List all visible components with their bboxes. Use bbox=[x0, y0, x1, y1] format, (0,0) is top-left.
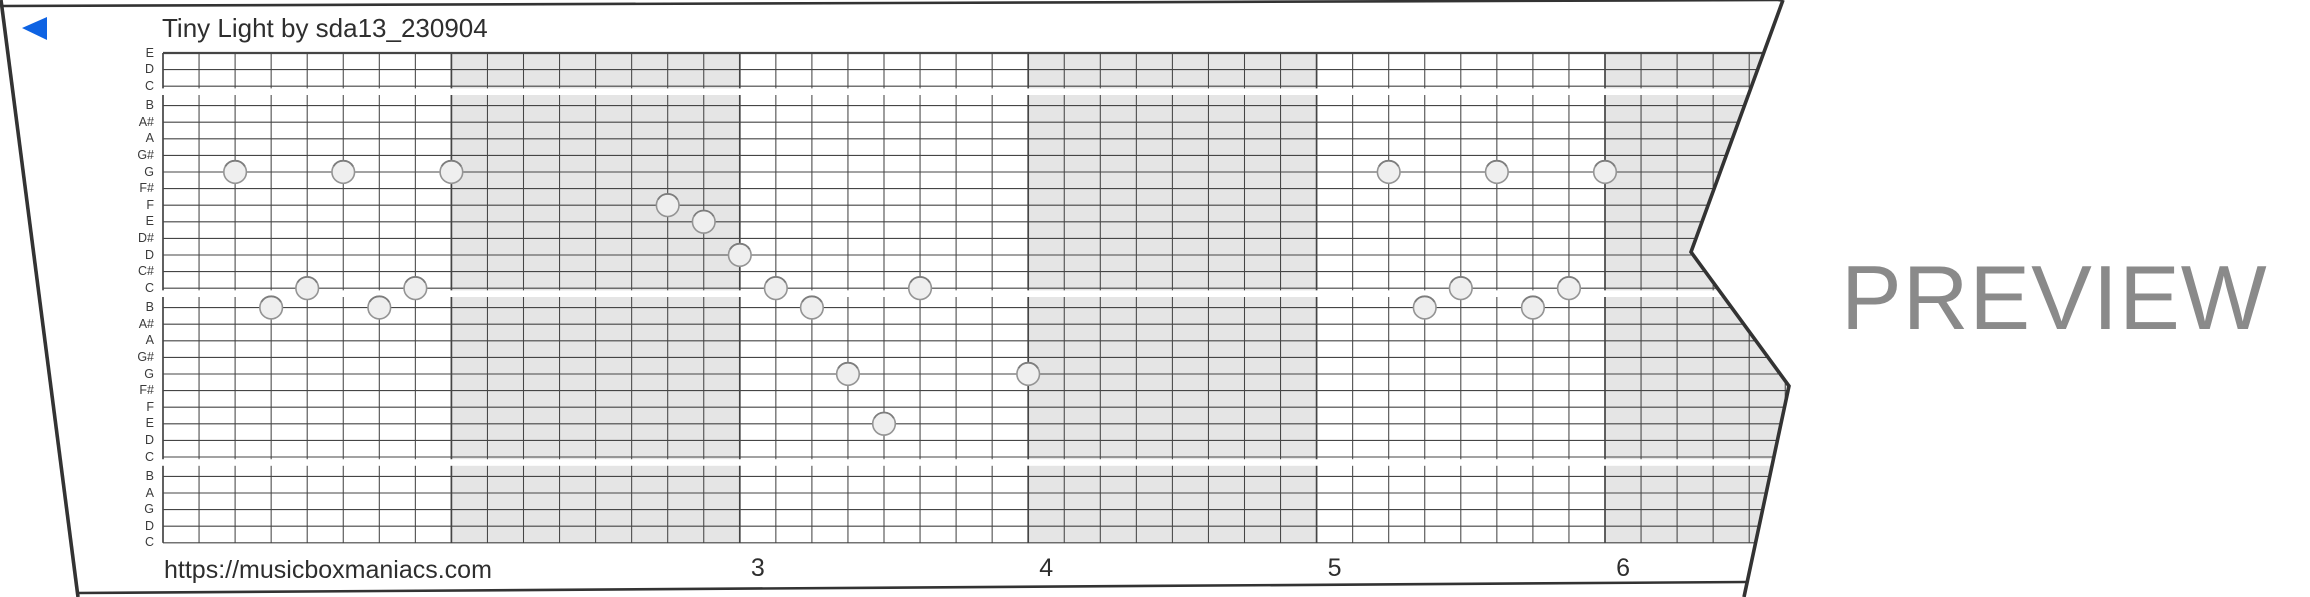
strip-top-edge bbox=[1, 0, 1781, 6]
note-row-label: B bbox=[110, 470, 154, 483]
note-row-label: B bbox=[110, 301, 154, 314]
play-marker-icon bbox=[22, 17, 47, 40]
measure-number: 4 bbox=[1026, 554, 1066, 583]
note-row-label: D bbox=[110, 520, 154, 533]
note-row-label: E bbox=[110, 215, 154, 228]
note-row-label: D bbox=[110, 434, 154, 447]
note-row-label: G# bbox=[110, 351, 154, 364]
note-row-label: A bbox=[110, 487, 154, 500]
note-row-label: A bbox=[110, 334, 154, 347]
note-row-label: F# bbox=[110, 384, 154, 397]
note-row-label: G# bbox=[110, 149, 154, 162]
note-row-label: A bbox=[110, 132, 154, 145]
preview-watermark: PREVIEW bbox=[1841, 247, 2268, 351]
note-row-label: D bbox=[110, 249, 154, 262]
note-row-label: A# bbox=[110, 116, 154, 129]
measure-number: 3 bbox=[738, 554, 778, 583]
page-title: Tiny Light by sda13_230904 bbox=[162, 13, 488, 44]
note-row-label: B bbox=[110, 99, 154, 112]
note-row-label: D# bbox=[110, 232, 154, 245]
footer-url: https://musicboxmaniacs.com bbox=[164, 556, 492, 585]
note-row-label: D bbox=[110, 63, 154, 76]
note-row-label: G bbox=[110, 166, 154, 179]
measure-number: 6 bbox=[1603, 554, 1643, 583]
music-strip-preview: Tiny Light by sda13_230904 https://music… bbox=[0, 0, 2310, 597]
note-row-label: E bbox=[110, 47, 154, 60]
note-row-label: F bbox=[110, 401, 154, 414]
note-row-label: C bbox=[110, 451, 154, 464]
strip-left-edge bbox=[1, 0, 78, 597]
note-row-label: G bbox=[110, 503, 154, 516]
note-row-label: A# bbox=[110, 318, 154, 331]
note-row-label: C bbox=[110, 80, 154, 93]
note-row-label: F bbox=[110, 199, 154, 212]
note-row-label: C bbox=[110, 536, 154, 549]
measure-number: 5 bbox=[1315, 554, 1355, 583]
note-row-label: G bbox=[110, 368, 154, 381]
note-row-label: E bbox=[110, 417, 154, 430]
note-row-label: F# bbox=[110, 182, 154, 195]
note-row-label: C bbox=[110, 282, 154, 295]
note-row-label: C# bbox=[110, 265, 154, 278]
